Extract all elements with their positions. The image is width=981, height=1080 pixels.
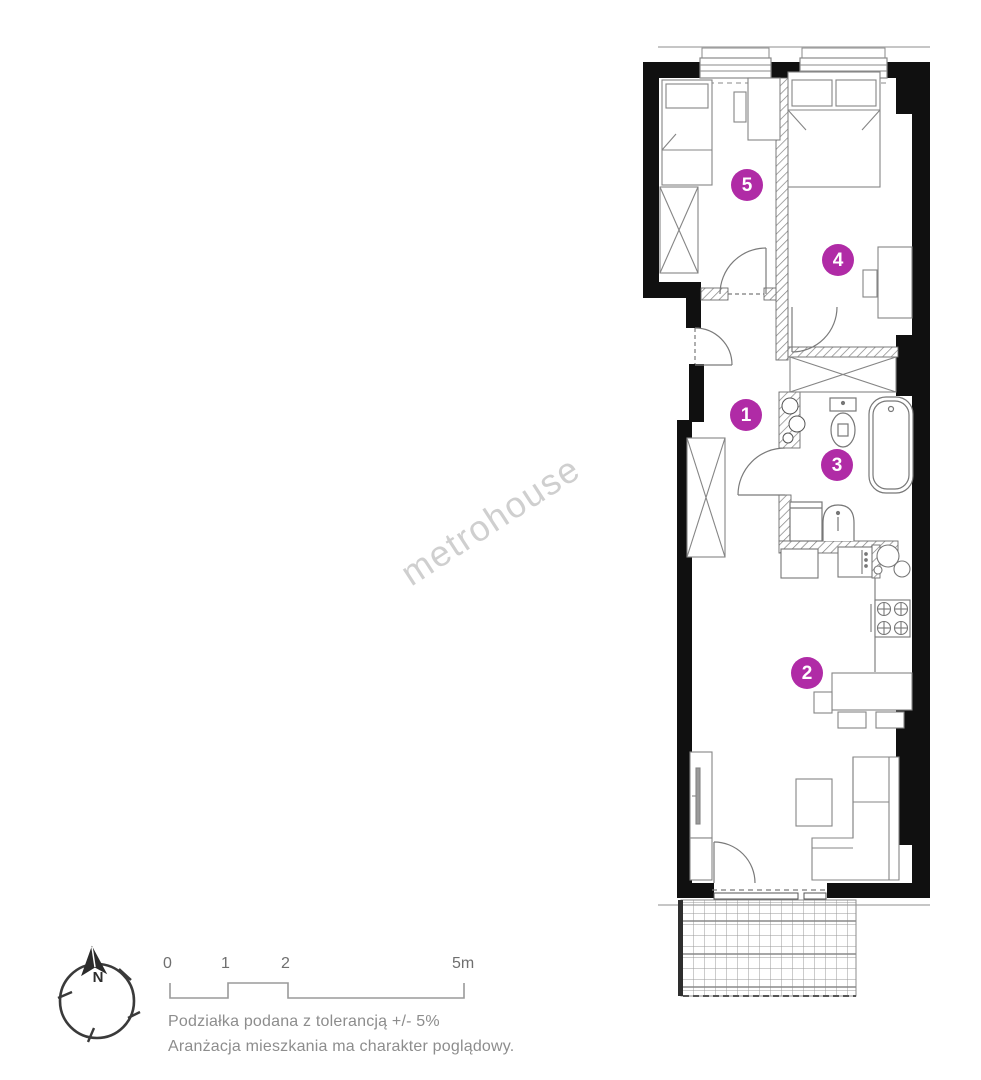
bathroom-door-arc — [738, 448, 785, 495]
footnote-tolerance: Podziałka podana z tolerancją +/- 5% — [168, 1013, 440, 1031]
chair — [734, 92, 746, 122]
scale-bar — [170, 983, 464, 998]
floor-plan-page: metrohouse 1 2 3 4 5 N 0 1 2 5m Podziałk… — [0, 0, 981, 1080]
compass — [58, 947, 140, 1042]
pillow — [666, 84, 708, 108]
room-marker-5: 5 — [731, 169, 763, 201]
entrance-door-arc — [695, 328, 732, 365]
scale-tick-0: 0 — [163, 955, 172, 973]
tv — [696, 768, 700, 824]
desk — [878, 247, 912, 318]
dining-table — [832, 673, 912, 710]
room5-furniture — [660, 78, 780, 273]
chair — [876, 712, 904, 728]
pillow-left — [792, 80, 832, 106]
balcony-door-arc — [714, 842, 755, 883]
room-marker-3: 3 — [821, 449, 853, 481]
room-marker-1: 1 — [730, 399, 762, 431]
dining-set — [814, 673, 912, 728]
kitchen — [781, 545, 910, 672]
tv-cabinet — [690, 752, 712, 838]
chair — [814, 692, 832, 713]
chair — [838, 712, 866, 728]
coffee-table — [796, 779, 832, 826]
footnote-disclaimer: Aranżacja mieszkania ma charakter pogląd… — [168, 1038, 514, 1056]
pillow-right — [836, 80, 876, 106]
balcony-edge — [678, 900, 683, 996]
scale-tick-5m: 5m — [452, 955, 474, 973]
chair — [863, 270, 877, 297]
room5-door-arc — [720, 248, 766, 294]
north-label: N — [88, 969, 108, 986]
balcony — [678, 900, 856, 996]
room-marker-4: 4 — [822, 244, 854, 276]
room4-furniture — [788, 72, 912, 318]
desk — [748, 78, 780, 140]
room-marker-2: 2 — [791, 657, 823, 689]
room4-door-arc — [792, 307, 837, 352]
kitchen-cabinet — [781, 549, 818, 578]
scale-tick-2: 2 — [281, 955, 290, 973]
living-room-furniture — [690, 752, 899, 880]
scale-tick-1: 1 — [221, 955, 230, 973]
fridge — [838, 547, 872, 577]
